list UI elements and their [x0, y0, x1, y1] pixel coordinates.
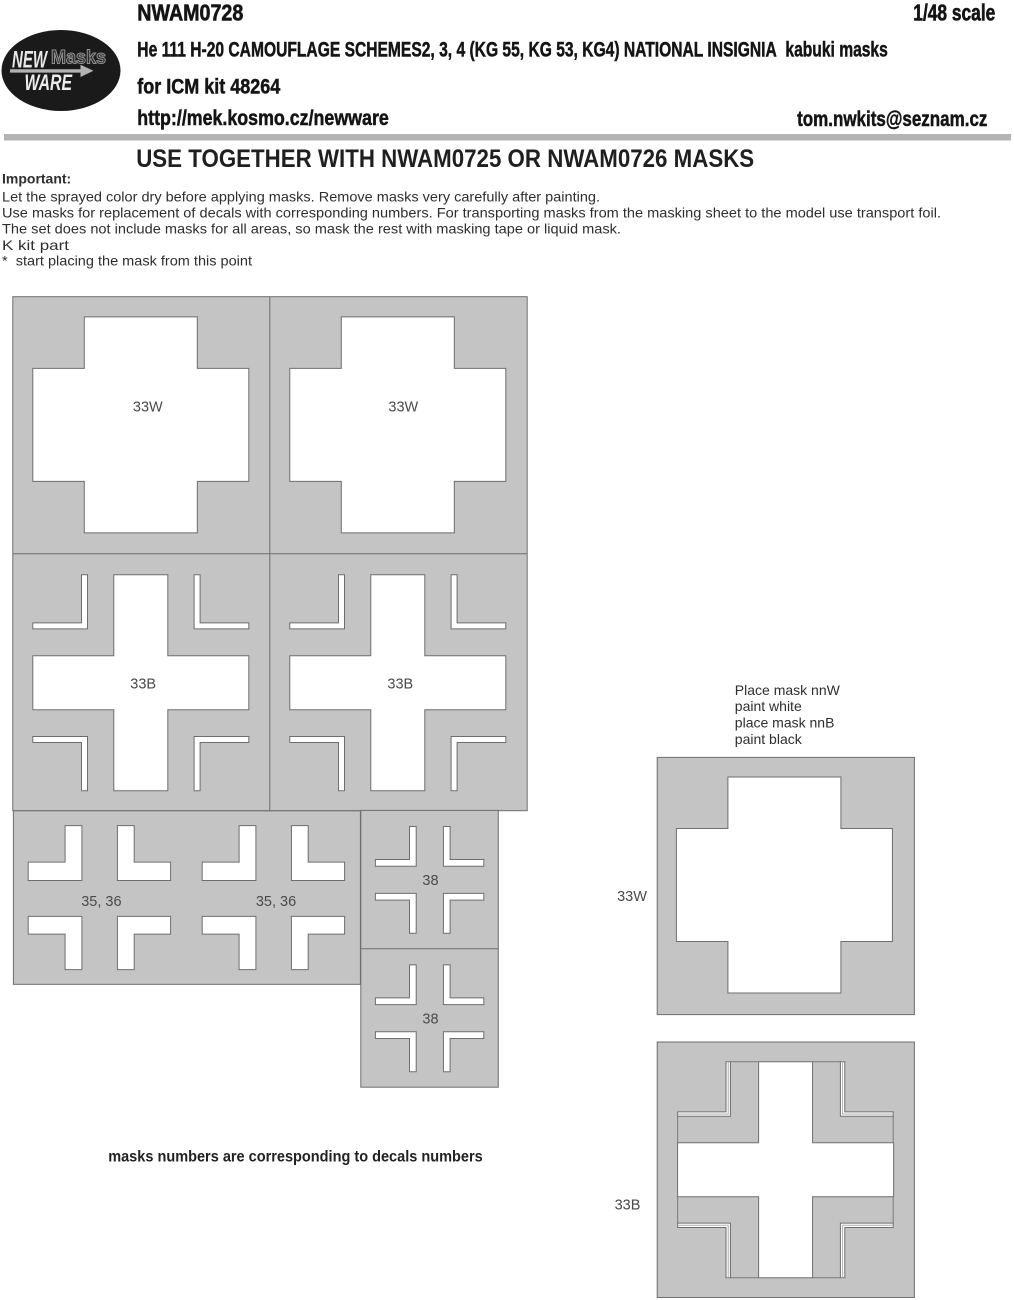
svg-text:http://mek.kosmo.cz/newware: http://mek.kosmo.cz/newware — [137, 106, 389, 130]
svg-text:38: 38 — [422, 1011, 438, 1027]
svg-text:33B: 33B — [387, 677, 413, 693]
svg-text:The set does not include masks: The set does not include masks for all a… — [2, 221, 621, 237]
svg-text:Important:: Important: — [2, 171, 71, 187]
svg-text:Let the sprayed color dry befo: Let the sprayed color dry before applyin… — [2, 188, 600, 204]
svg-text:K kit part: K kit part — [2, 237, 69, 253]
svg-text:33B: 33B — [130, 677, 156, 693]
svg-text:Place mask nnW: Place mask nnW — [735, 682, 841, 698]
svg-text:place mask nnB: place mask nnB — [735, 715, 835, 731]
svg-text:1/48 scale: 1/48 scale — [913, 0, 995, 26]
svg-text:Masks: Masks — [51, 47, 106, 69]
svg-text:33B: 33B — [615, 1198, 641, 1214]
svg-text:paint white: paint white — [735, 698, 802, 714]
svg-text:masks numbers are correspondin: masks numbers are corresponding to decal… — [108, 1148, 483, 1165]
svg-text:paint black: paint black — [735, 731, 803, 747]
svg-text:He 111 H-20 CAMOUFLAGE SCHEMES: He 111 H-20 CAMOUFLAGE SCHEMES2, 3, 4 (K… — [137, 37, 888, 61]
svg-text:35, 36: 35, 36 — [81, 894, 121, 910]
svg-text:* start placing the mask from: * start placing the mask from this point — [2, 253, 252, 269]
svg-text:USE TOGETHER WITH NWAM0725 OR: USE TOGETHER WITH NWAM0725 OR NWAM0726 M… — [136, 145, 754, 173]
svg-text:NWAM0728: NWAM0728 — [137, 0, 243, 26]
svg-text:WARE: WARE — [25, 70, 73, 95]
svg-text:33W: 33W — [617, 889, 647, 905]
svg-text:33W: 33W — [388, 399, 418, 415]
svg-text:38: 38 — [422, 873, 438, 889]
svg-text:tom.nwkits@seznam.cz: tom.nwkits@seznam.cz — [797, 107, 987, 131]
svg-text:35, 36: 35, 36 — [256, 894, 296, 910]
svg-text:Use masks for replacement of d: Use masks for replacement of decals with… — [2, 204, 941, 220]
svg-text:for ICM kit 48264: for ICM kit 48264 — [137, 74, 280, 98]
svg-text:33W: 33W — [133, 399, 163, 415]
